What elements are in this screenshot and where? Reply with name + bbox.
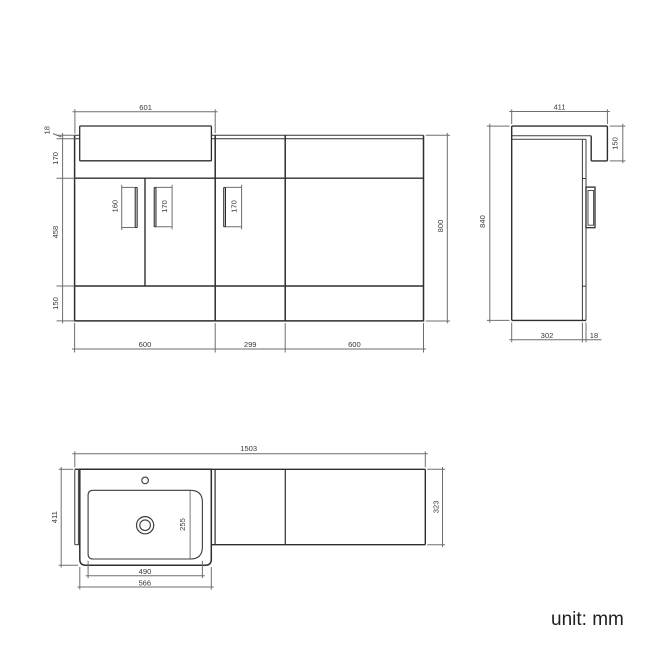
svg-text:600: 600: [348, 340, 361, 349]
svg-text:302: 302: [541, 331, 554, 340]
svg-text:170: 170: [51, 152, 60, 165]
svg-text:490: 490: [139, 567, 152, 576]
svg-text:600: 600: [139, 340, 152, 349]
svg-text:170: 170: [160, 200, 169, 213]
svg-text:18: 18: [590, 331, 598, 340]
svg-text:601: 601: [139, 103, 152, 112]
svg-text:150: 150: [611, 137, 620, 150]
svg-text:299: 299: [244, 340, 257, 349]
svg-text:411: 411: [50, 511, 59, 523]
svg-text:160: 160: [111, 200, 120, 213]
svg-text:566: 566: [138, 578, 151, 587]
svg-text:800: 800: [436, 220, 445, 233]
svg-text:18: 18: [43, 126, 52, 134]
svg-text:411: 411: [553, 103, 565, 112]
svg-text:unit: mm: unit: mm: [551, 609, 624, 630]
svg-text:840: 840: [478, 215, 487, 228]
svg-text:255: 255: [178, 518, 187, 531]
svg-text:170: 170: [230, 200, 239, 213]
svg-text:1503: 1503: [240, 444, 257, 453]
svg-text:323: 323: [432, 501, 441, 514]
svg-text:150: 150: [51, 297, 60, 310]
svg-text:458: 458: [51, 226, 60, 239]
